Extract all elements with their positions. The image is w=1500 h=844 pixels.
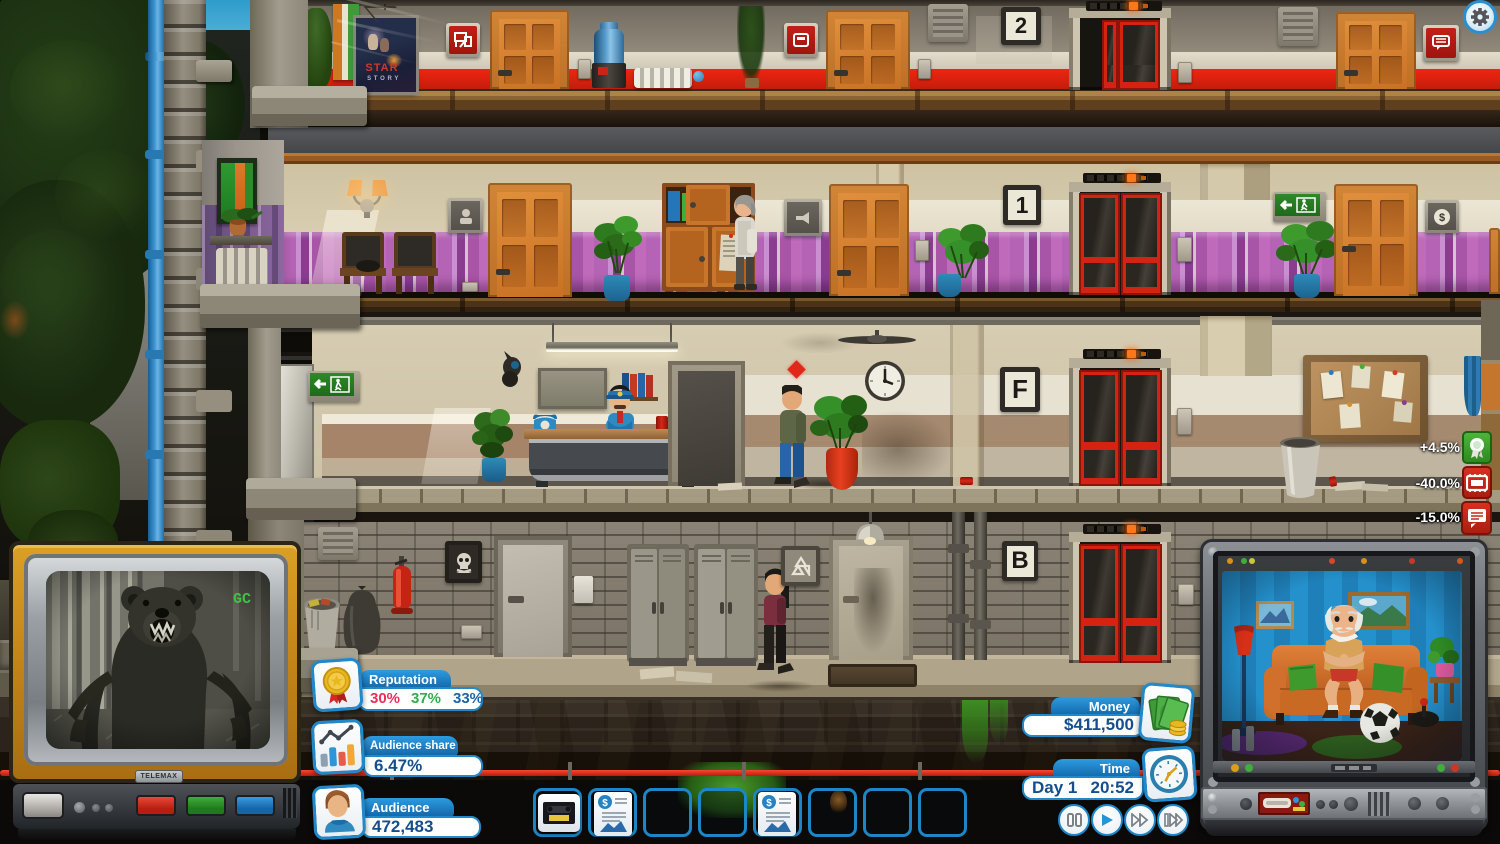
svg-text:GC: GC (233, 591, 251, 608)
svg-text:$: $ (766, 798, 772, 809)
svg-text:$: $ (602, 798, 608, 809)
